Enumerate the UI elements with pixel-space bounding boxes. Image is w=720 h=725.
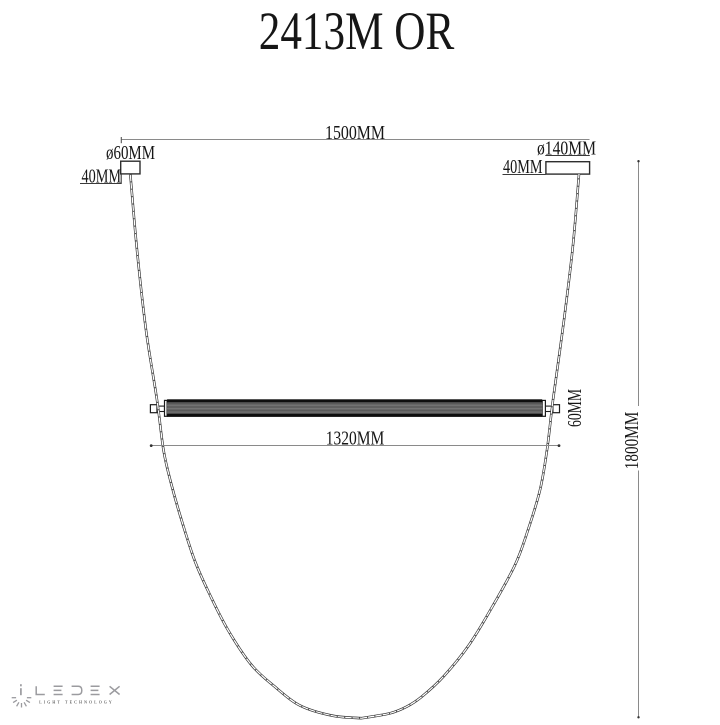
svg-text:1800MM: 1800MM <box>621 412 643 470</box>
svg-text:LIGHT TECHNOLOGY: LIGHT TECHNOLOGY <box>39 700 113 704</box>
svg-text:1320MM: 1320MM <box>326 427 385 449</box>
svg-text:60MM: 60MM <box>564 389 586 427</box>
svg-text:ø60MM: ø60MM <box>106 142 155 164</box>
svg-text:1500MM: 1500MM <box>325 122 385 144</box>
svg-text:2413M OR: 2413M OR <box>259 0 455 61</box>
